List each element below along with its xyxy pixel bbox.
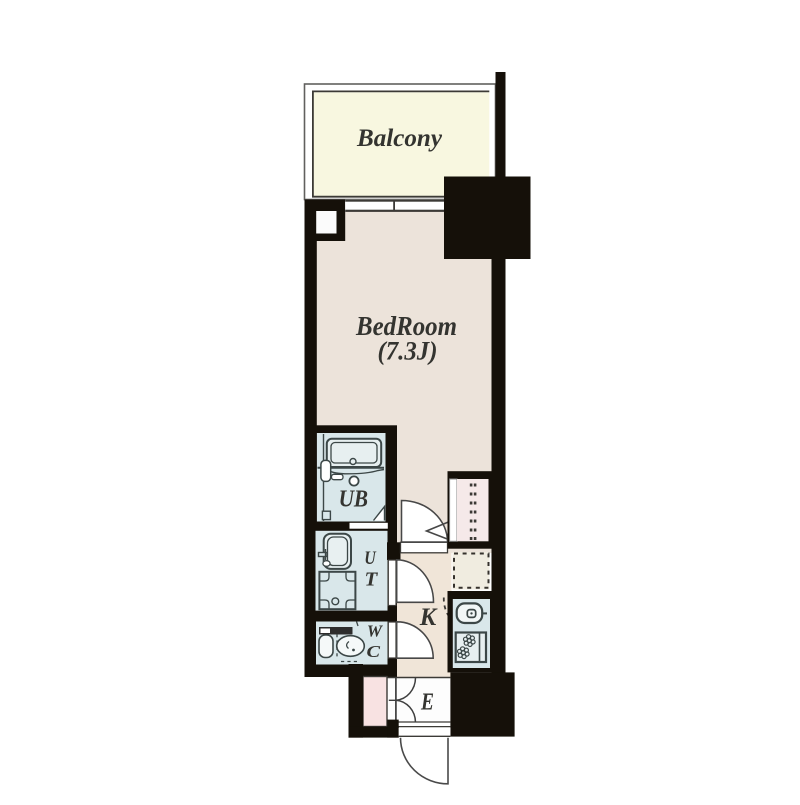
svg-text:W: W — [367, 622, 384, 641]
svg-text:(7.3J): (7.3J) — [378, 337, 438, 366]
svg-text:U: U — [364, 548, 377, 569]
svg-text:T: T — [365, 570, 379, 591]
svg-text:E: E — [420, 690, 434, 716]
svg-text:Balcony: Balcony — [356, 123, 443, 152]
svg-text:C: C — [367, 642, 381, 661]
svg-text:UB: UB — [339, 486, 369, 513]
svg-text:K: K — [419, 604, 439, 631]
